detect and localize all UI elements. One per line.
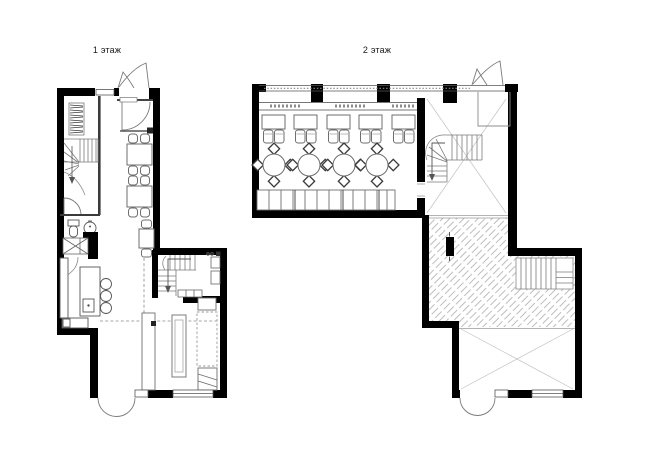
- stool-icon: [101, 291, 112, 302]
- bar-counter: [257, 190, 395, 210]
- toilet-icon: [68, 220, 79, 237]
- floor1-entrance-door: [118, 63, 149, 88]
- round-tables: [252, 143, 399, 187]
- kitchen: [60, 258, 112, 328]
- window-tables: [262, 115, 415, 143]
- floor1-dining-tables: [127, 134, 152, 217]
- wc-door: [64, 198, 81, 214]
- banquette-bench: [259, 103, 417, 111]
- terrace-divider: [429, 216, 508, 219]
- kitchen-counter: [60, 258, 68, 318]
- floor1-window-top: [96, 90, 114, 96]
- floor2-balcony-door: [460, 398, 495, 416]
- staircase-1: [64, 139, 98, 195]
- stool-icon: [101, 279, 112, 290]
- terrace-staircase: [516, 258, 573, 289]
- sidelight-window: [135, 390, 148, 397]
- floor1-back-door: [98, 398, 135, 417]
- stair-shelves: [207, 252, 221, 285]
- floor-plans-canvas: [0, 0, 650, 459]
- floor1-plan: [57, 63, 227, 417]
- partition-opening: [417, 182, 425, 198]
- sidelight-window: [495, 390, 508, 397]
- stair-counter: [178, 290, 202, 297]
- staircase-2: [152, 250, 223, 303]
- coat-rack: [69, 103, 84, 135]
- hall-furniture: [142, 298, 217, 390]
- shaft-icon: [63, 238, 88, 254]
- bench-dashed: [197, 312, 217, 366]
- long-table: [172, 315, 186, 377]
- floor1-vestibule: [117, 98, 153, 134]
- floor2-entrance-door: [472, 61, 510, 126]
- small-table: [139, 220, 154, 257]
- floor2-plan: [252, 61, 582, 416]
- side-cabinet: [198, 298, 216, 310]
- stool-icon: [101, 303, 112, 314]
